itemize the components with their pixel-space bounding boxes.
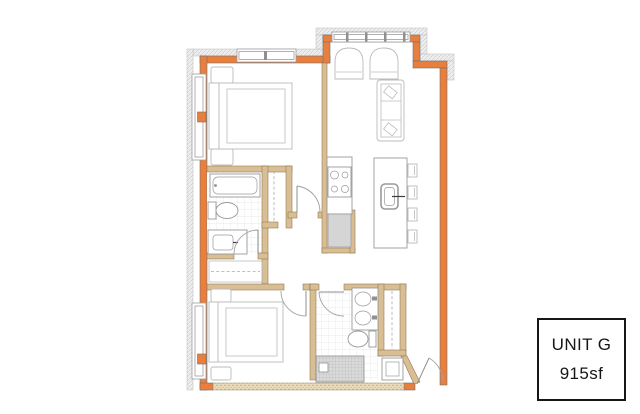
bedroom2-door	[281, 291, 306, 316]
toilet	[348, 331, 376, 347]
living-room	[335, 48, 404, 141]
nightstand	[211, 367, 231, 380]
entry-angled-wall	[401, 356, 420, 384]
corridor-wall	[213, 383, 404, 390]
refrigerator	[328, 214, 351, 247]
unit-area: 915sf	[560, 364, 604, 384]
shower	[316, 356, 364, 382]
nightstand	[211, 149, 233, 165]
kitchen-island	[374, 158, 407, 248]
toilet	[208, 202, 238, 219]
double-vanity	[352, 288, 378, 330]
vanity-sink	[208, 230, 247, 254]
armchair	[370, 48, 398, 79]
kitchen	[327, 157, 417, 248]
bedroom1-top-window	[237, 49, 296, 62]
entry-door	[417, 358, 443, 384]
bedroom2-wardrobe	[209, 261, 262, 282]
headboard	[209, 302, 218, 362]
bedroom1-side-window	[192, 74, 206, 160]
bedroom1-door	[297, 186, 320, 212]
armchair	[335, 48, 363, 79]
entry	[382, 358, 403, 380]
bedroom-2	[209, 289, 283, 380]
bed	[218, 302, 283, 362]
headboard	[209, 83, 219, 149]
unit-label-box: UNIT G 915sf	[537, 318, 626, 401]
bedroom-1	[209, 67, 292, 165]
bathtub	[210, 174, 260, 197]
bedroom2-side-window	[192, 303, 206, 379]
living-room-window	[332, 32, 410, 42]
sofa	[377, 80, 404, 141]
bed	[219, 83, 292, 149]
washer-dryer	[382, 358, 403, 380]
nightstand	[211, 289, 231, 302]
nightstand	[211, 67, 233, 83]
floor-plan-page: UNIT G 915sf	[0, 0, 640, 414]
bar-stools	[408, 164, 417, 243]
unit-name: UNIT G	[552, 335, 612, 355]
stove	[328, 167, 351, 197]
